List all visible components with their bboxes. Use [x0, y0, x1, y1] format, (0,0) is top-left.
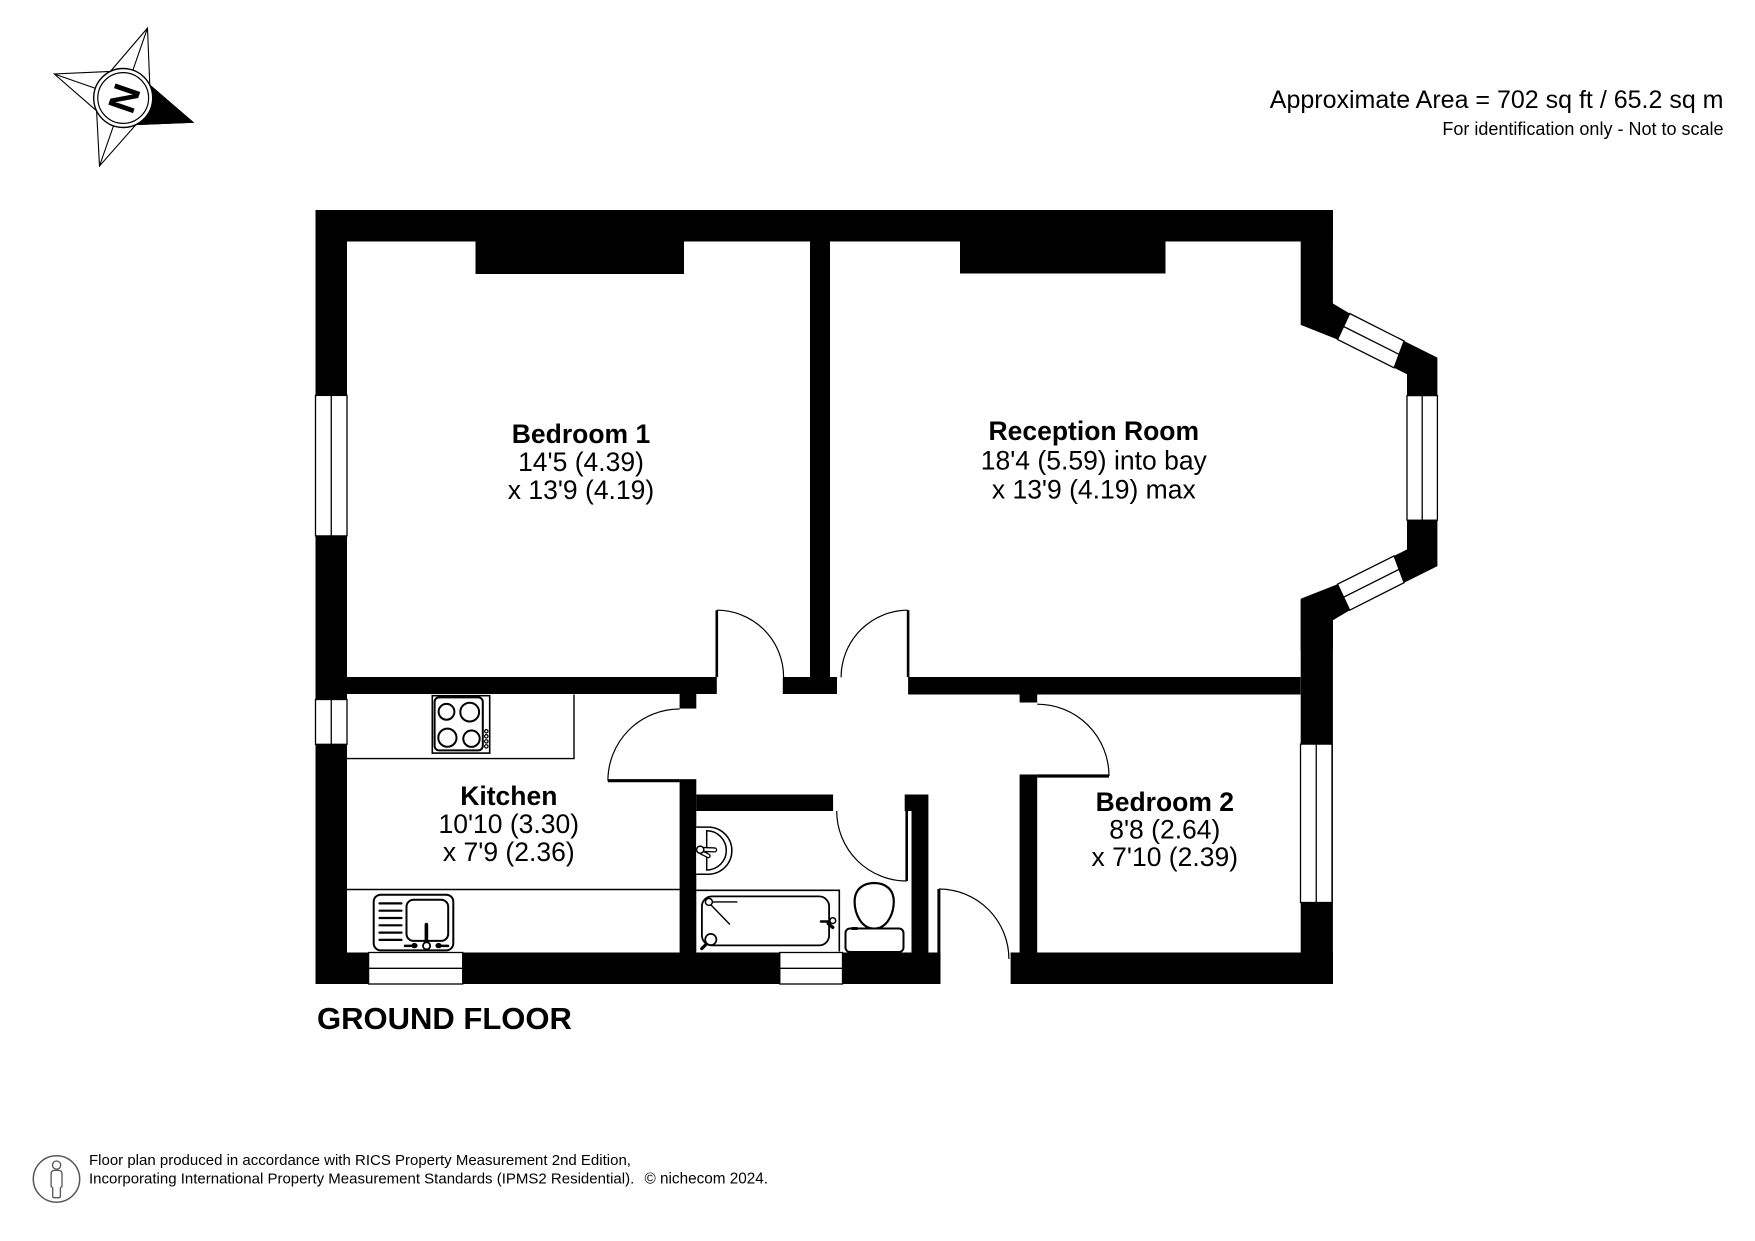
- svg-text:For identification only - Not: For identification only - Not to scale: [1442, 119, 1723, 139]
- svg-text:x 13'9 (4.19): x 13'9 (4.19): [508, 475, 654, 505]
- svg-text:x 13'9 (4.19) max: x 13'9 (4.19) max: [992, 474, 1196, 504]
- svg-text:x 7'10 (2.39): x 7'10 (2.39): [1092, 842, 1238, 872]
- svg-text:Floor plan produced in accorda: Floor plan produced in accordance with R…: [89, 1152, 631, 1169]
- svg-text:18'4 (5.59) into bay: 18'4 (5.59) into bay: [981, 445, 1208, 475]
- svg-text:8'8 (2.64): 8'8 (2.64): [1109, 815, 1220, 845]
- svg-text:Incorporating International Pr: Incorporating International Property Mea…: [89, 1171, 634, 1188]
- svg-text:Bedroom 2: Bedroom 2: [1096, 787, 1234, 817]
- svg-text:Kitchen: Kitchen: [460, 781, 557, 811]
- svg-text:© nichecom 2024.: © nichecom 2024.: [645, 1170, 769, 1187]
- svg-text:14'5 (4.39): 14'5 (4.39): [518, 447, 644, 477]
- svg-text:10'10 (3.30): 10'10 (3.30): [438, 809, 579, 839]
- svg-text:GROUND FLOOR: GROUND FLOOR: [317, 1001, 572, 1036]
- svg-text:x 7'9 (2.36): x 7'9 (2.36): [443, 837, 575, 867]
- svg-text:Approximate Area = 702 sq ft /: Approximate Area = 702 sq ft / 65.2 sq m: [1270, 86, 1724, 114]
- svg-text:Bedroom 1: Bedroom 1: [512, 419, 650, 449]
- svg-text:Reception Room: Reception Room: [989, 416, 1200, 446]
